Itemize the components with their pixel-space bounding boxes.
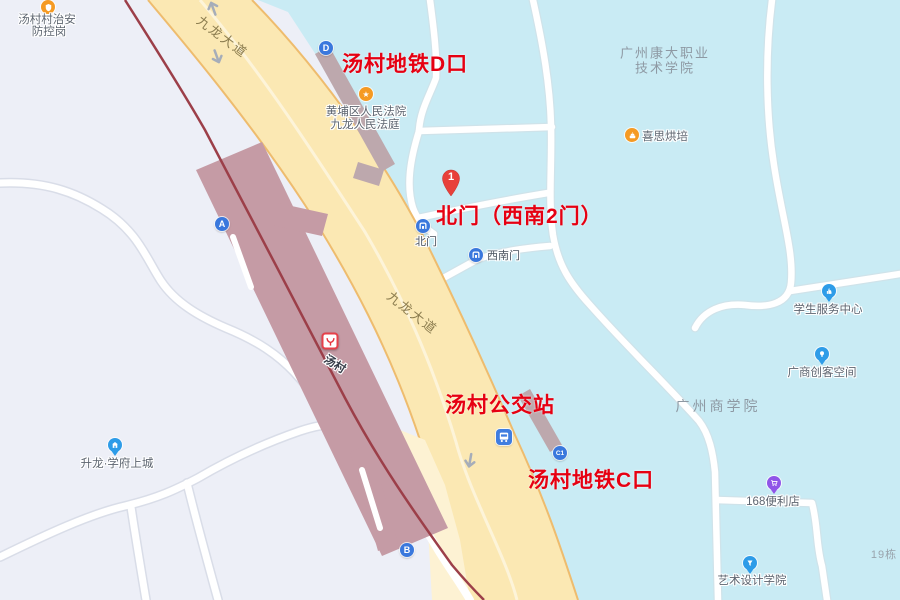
metro-station-icon[interactable]	[322, 333, 339, 350]
court-badge-icon[interactable]: ★	[359, 87, 373, 101]
north-gate-icon[interactable]	[416, 219, 430, 233]
building-19-label: 19栋	[871, 546, 897, 562]
map-screenshot: 汤村村治安 防控岗 ★ 黄埔区人民法院 九龙人民法庭 D 汤村地铁D口 广州康大…	[0, 0, 900, 600]
annotation-exit-d: 汤村地铁D口	[342, 48, 468, 78]
bus-stop-icon[interactable]	[496, 429, 512, 445]
court-star-glyph: ★	[362, 90, 369, 99]
store-168-label: 168便利店	[746, 493, 800, 509]
kangda-college-label-line2: 技术学院	[635, 58, 695, 77]
store-168-pin[interactable]	[767, 476, 781, 490]
maker-space-pin[interactable]	[815, 347, 829, 361]
court-label-line2: 九龙人民法庭	[331, 116, 400, 132]
annotation-bus-stop: 汤村公交站	[445, 389, 555, 419]
southwest-gate-icon[interactable]	[469, 248, 483, 262]
metro-exit-d-label: D	[323, 43, 330, 53]
metro-exit-b-marker[interactable]: B	[400, 543, 414, 557]
security-post-label-line2: 防控岗	[32, 23, 67, 39]
art-school-label: 艺术设计学院	[718, 572, 787, 588]
map-canvas[interactable]	[0, 0, 900, 600]
metro-exit-a-label: A	[219, 219, 226, 229]
metro-exit-c1-marker[interactable]: C1	[553, 446, 567, 460]
bakery-icon[interactable]	[625, 128, 639, 142]
bakery-label: 喜思烘培	[642, 128, 688, 144]
metro-exit-d-marker[interactable]: D	[319, 41, 333, 55]
annotation-exit-c: 汤村地铁C口	[528, 464, 654, 494]
student-service-pin[interactable]	[822, 284, 836, 298]
art-school-pin[interactable]	[743, 556, 757, 570]
business-college-label: 广州商学院	[676, 396, 761, 416]
student-service-label: 学生服务中心	[794, 301, 863, 317]
southwest-gate-label: 西南门	[487, 247, 520, 263]
north-gate-label: 北门	[415, 233, 437, 249]
metro-exit-c1-label: C1	[556, 450, 564, 457]
marker-1-label: 1	[441, 171, 461, 183]
shenglong-residence-label: 升龙·学府上城	[81, 455, 154, 471]
marker-1-pin[interactable]: 1	[441, 169, 461, 197]
maker-space-label: 广商创客空间	[788, 364, 857, 380]
metro-exit-a-marker[interactable]: A	[215, 217, 229, 231]
metro-exit-b-label: B	[404, 545, 411, 555]
shenglong-residence-pin[interactable]	[108, 438, 122, 452]
annotation-north-gate: 北门（西南2门）	[436, 200, 603, 230]
